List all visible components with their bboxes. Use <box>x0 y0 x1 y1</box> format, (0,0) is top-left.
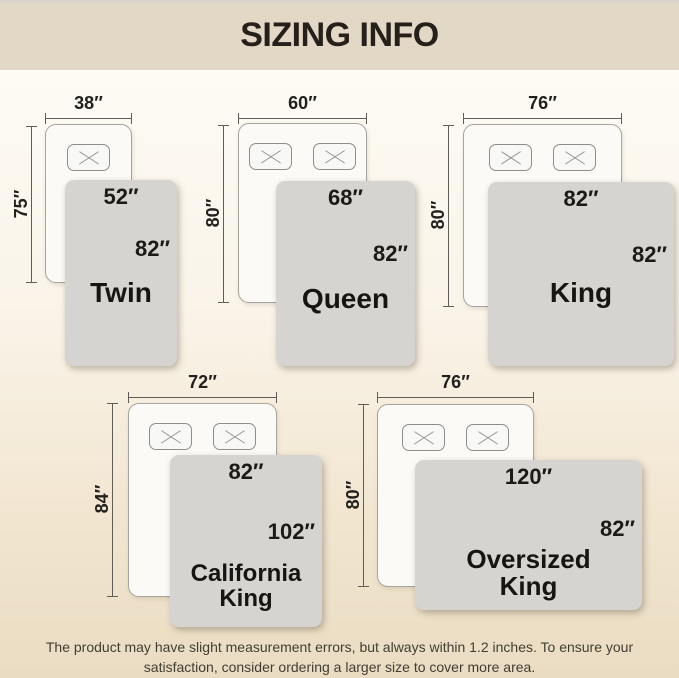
mattress-width-dimension: 72″ <box>128 373 277 403</box>
pillow-x-icon <box>149 423 192 450</box>
blanket-width-label: 120″ <box>415 464 642 490</box>
mattress-length-label: 75″ <box>12 154 30 254</box>
size-name-label: Queen <box>276 284 415 313</box>
size-name-label: King <box>488 278 674 307</box>
mattress-width-label: 72″ <box>128 373 277 391</box>
mattress-width-label: 76″ <box>463 94 622 112</box>
blanket: 52″ 82″ Twin <box>65 180 177 366</box>
width-dimension-line <box>128 392 277 403</box>
blanket-width-label: 68″ <box>276 185 415 211</box>
mattress-width-dimension: 38″ <box>45 94 132 124</box>
width-dimension-line <box>45 113 132 124</box>
blanket-length-label: 82″ <box>600 516 635 542</box>
width-dimension-line <box>377 392 534 403</box>
pillow-x-icon <box>402 424 445 451</box>
mattress-width-dimension: 76″ <box>463 94 622 124</box>
pillow-x-icon <box>313 143 356 170</box>
size-name-label: Oversized King <box>445 546 612 601</box>
mattress-length-dimension: 80″ <box>443 125 454 307</box>
blanket-width-label: 82″ <box>488 186 674 212</box>
mattress-width-label: 60″ <box>238 94 367 112</box>
mattress-length-label: 84″ <box>93 449 111 549</box>
mattress-width-dimension: 60″ <box>238 94 367 124</box>
page-title: SIZING INFO <box>0 3 679 67</box>
blanket: 82″ 102″ California King <box>170 455 322 627</box>
mattress-length-label: 80″ <box>429 165 447 265</box>
blanket-width-label: 82″ <box>170 459 322 485</box>
pillow-x-icon <box>249 143 292 170</box>
mattress-length-label: 80″ <box>204 163 222 263</box>
blanket: 68″ 82″ Queen <box>276 181 415 366</box>
pillow-x-icon <box>466 424 509 451</box>
size-name-label: California King <box>170 561 322 611</box>
mattress-width-label: 38″ <box>45 94 132 112</box>
blanket: 120″ 82″ Oversized King <box>415 460 642 610</box>
pillow-x-icon <box>553 144 596 171</box>
blanket-length-label: 82″ <box>373 241 408 267</box>
blanket-width-label: 52″ <box>65 184 177 210</box>
mattress-length-dimension: 80″ <box>218 125 229 303</box>
blanket-length-label: 82″ <box>632 242 667 268</box>
pillow-x-icon <box>489 144 532 171</box>
mattress-length-label: 80″ <box>344 445 362 545</box>
blanket-length-label: 102″ <box>268 519 315 545</box>
pillow-x-icon <box>67 144 110 171</box>
blanket: 82″ 82″ King <box>488 182 674 366</box>
mattress-length-dimension: 80″ <box>358 404 369 587</box>
mattress-length-dimension: 75″ <box>26 126 37 283</box>
width-dimension-line <box>463 113 622 124</box>
mattress-width-label: 76″ <box>377 373 534 391</box>
sizing-info-page: SIZING INFO 38″ 75″ 52″ 82″ Twin 60″ 80″ <box>0 0 679 678</box>
header-bar: SIZING INFO <box>0 0 679 70</box>
mattress-length-dimension: 84″ <box>107 403 118 597</box>
size-name-label: Twin <box>65 278 177 307</box>
blanket-length-label: 82″ <box>135 236 170 262</box>
disclaimer-text: The product may have slight measurement … <box>18 638 661 677</box>
pillow-x-icon <box>213 423 256 450</box>
mattress-width-dimension: 76″ <box>377 373 534 403</box>
